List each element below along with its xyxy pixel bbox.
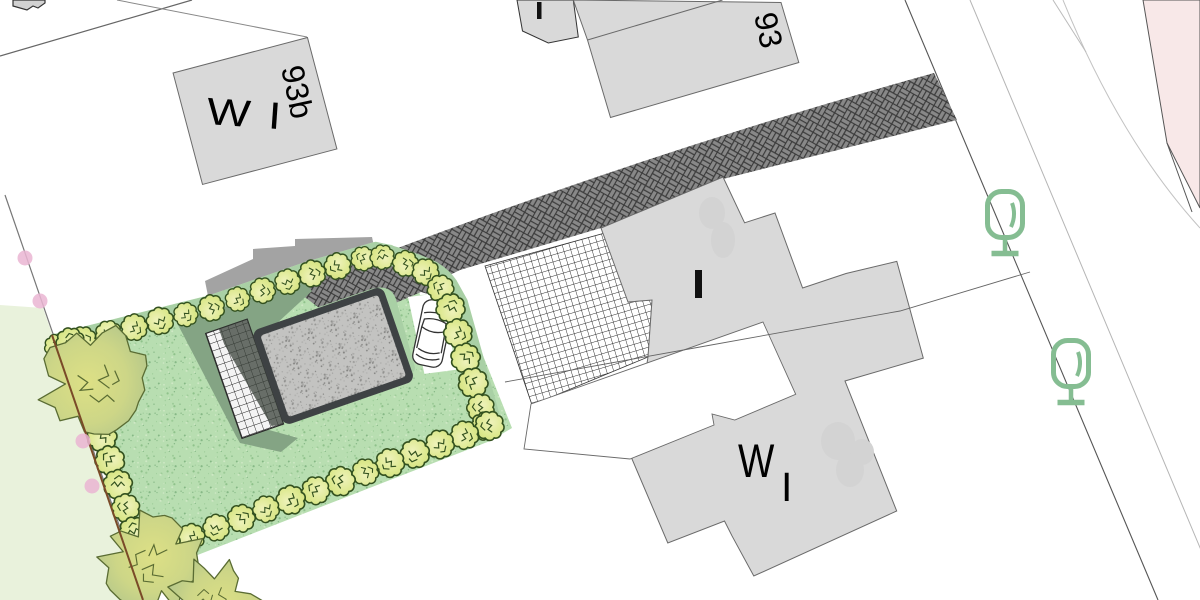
svg-text:W I: W I: [205, 90, 285, 137]
svg-text:W: W: [738, 435, 775, 487]
svg-text:93: 93: [747, 9, 790, 51]
svg-text:I: I: [781, 464, 792, 510]
